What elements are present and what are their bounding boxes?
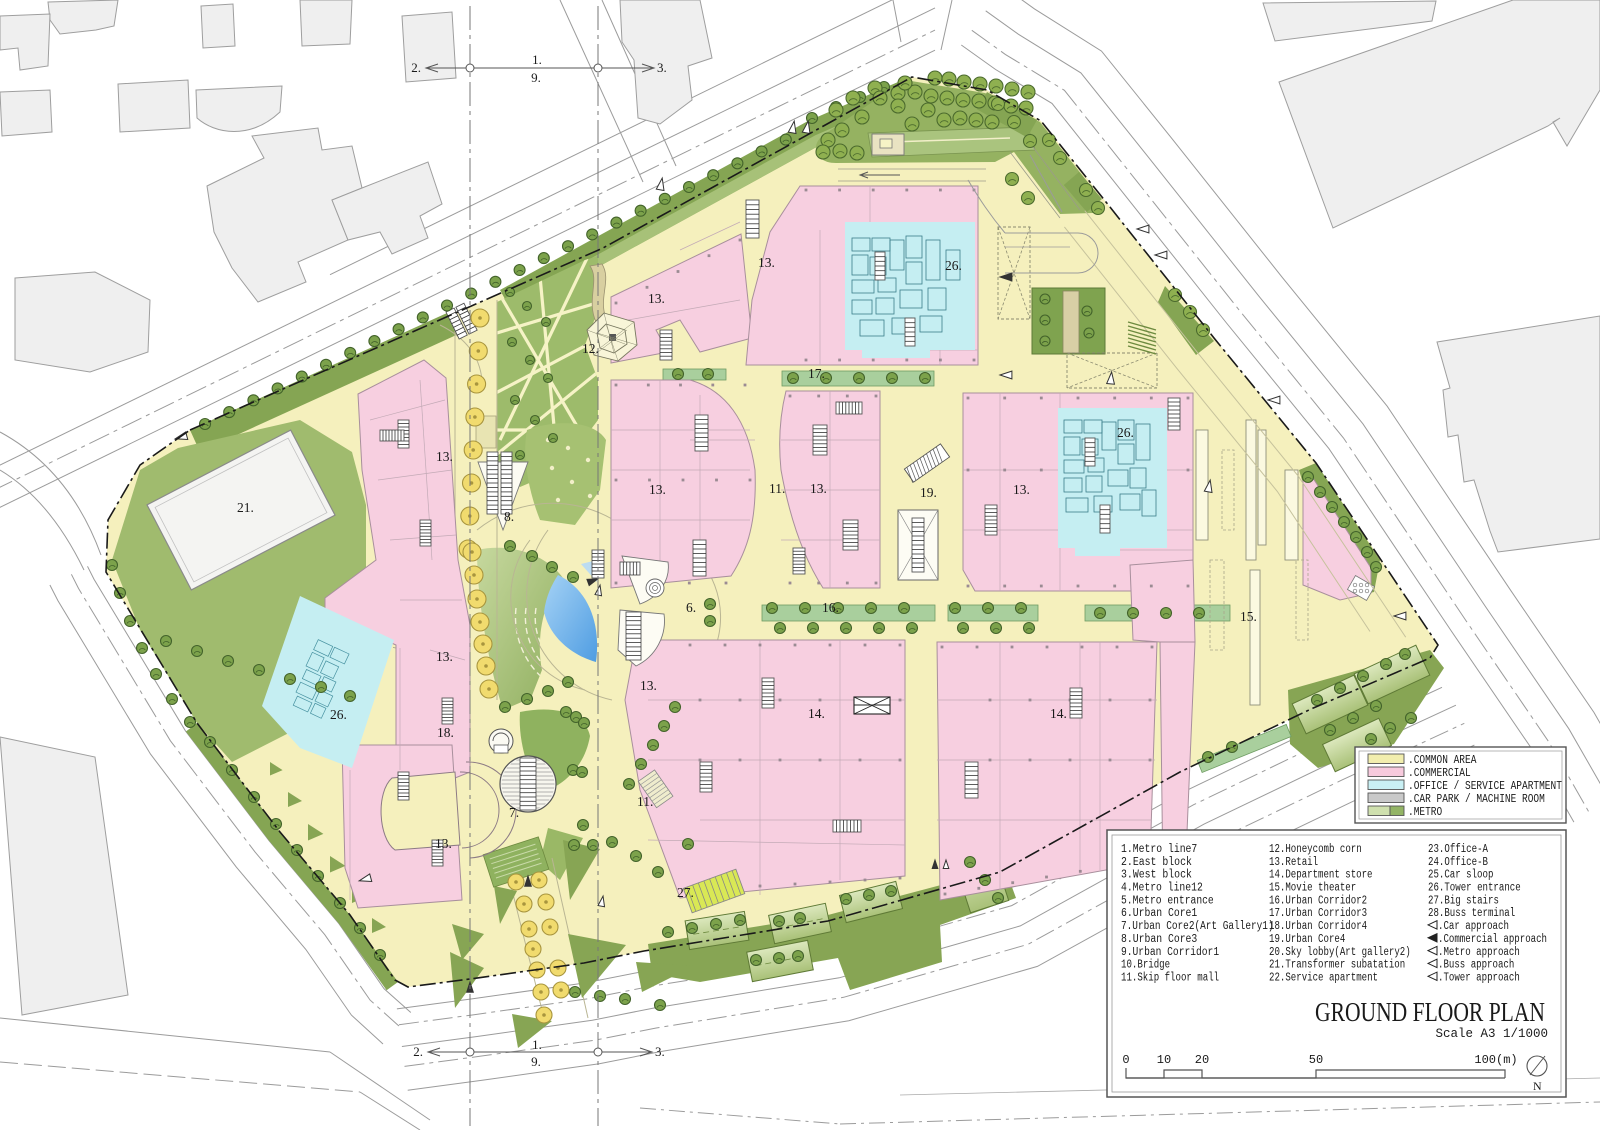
- svg-text:22.Service apartment: 22.Service apartment: [1269, 972, 1378, 985]
- svg-text:17.Urban Corridor3: 17.Urban Corridor3: [1269, 907, 1367, 920]
- svg-text:26.Tower entrance: 26.Tower entrance: [1428, 882, 1521, 895]
- svg-text:.COMMERCIAL: .COMMERCIAL: [1408, 767, 1471, 780]
- svg-text:10.Bridge: 10.Bridge: [1121, 959, 1170, 972]
- svg-text:20.Sky lobby(Art gallery2): 20.Sky lobby(Art gallery2): [1269, 946, 1411, 959]
- svg-text:12.Honeycomb corn: 12.Honeycomb corn: [1269, 843, 1362, 856]
- svg-text:5.Metro entrance: 5.Metro entrance: [1121, 894, 1214, 907]
- svg-text:6.Urban Core1: 6.Urban Core1: [1121, 907, 1197, 920]
- svg-text:100(m): 100(m): [1474, 1053, 1517, 1067]
- svg-text:1.Metro line7: 1.Metro line7: [1121, 843, 1197, 856]
- svg-text:13.: 13.: [436, 649, 453, 664]
- svg-text:.Tower approach: .Tower approach: [1438, 972, 1520, 985]
- svg-text:13.: 13.: [758, 255, 775, 270]
- svg-text:21.: 21.: [237, 500, 254, 515]
- svg-text:Scale A3 1/1000: Scale A3 1/1000: [1435, 1027, 1548, 1041]
- svg-text:26.: 26.: [1117, 425, 1134, 440]
- svg-text:14.: 14.: [808, 706, 825, 721]
- svg-text:26.: 26.: [330, 707, 347, 722]
- svg-text:.Buss approach: .Buss approach: [1438, 959, 1514, 972]
- svg-text:19.: 19.: [920, 485, 937, 500]
- svg-text:13.: 13.: [435, 836, 452, 851]
- svg-text:13.: 13.: [649, 482, 666, 497]
- svg-text:3.: 3.: [657, 60, 667, 75]
- svg-text:.COMMON AREA: .COMMON AREA: [1408, 754, 1476, 767]
- svg-text:7.Urban Core2(Art Gallery1): 7.Urban Core2(Art Gallery1): [1121, 920, 1274, 933]
- svg-text:21.Transformer subatation: 21.Transformer subatation: [1269, 959, 1405, 972]
- svg-text:16.: 16.: [822, 600, 839, 615]
- svg-text:.METRO: .METRO: [1408, 806, 1442, 819]
- svg-text:9.: 9.: [531, 70, 541, 85]
- svg-text:11.: 11.: [637, 794, 653, 809]
- svg-text:26.: 26.: [945, 258, 962, 273]
- svg-text:50: 50: [1309, 1053, 1323, 1067]
- svg-text:1.: 1.: [532, 1037, 542, 1052]
- svg-text:10: 10: [1157, 1053, 1171, 1067]
- svg-text:4.Metro line12: 4.Metro line12: [1121, 882, 1203, 895]
- svg-text:13.: 13.: [1013, 482, 1030, 497]
- svg-text:0: 0: [1122, 1053, 1129, 1067]
- svg-text:23.Office-A: 23.Office-A: [1428, 843, 1488, 856]
- svg-text:9.: 9.: [531, 1054, 541, 1069]
- svg-text:19.Urban Core4: 19.Urban Core4: [1269, 933, 1345, 946]
- svg-text:15.Movie theater: 15.Movie theater: [1269, 882, 1356, 895]
- svg-text:15.: 15.: [1240, 609, 1257, 624]
- svg-text:28.Buss terminal: 28.Buss terminal: [1428, 907, 1515, 920]
- svg-text:3.West block: 3.West block: [1121, 869, 1192, 882]
- svg-text:N: N: [1533, 1079, 1542, 1093]
- svg-text:24.Office-B: 24.Office-B: [1428, 856, 1488, 869]
- svg-text:27.: 27.: [677, 885, 694, 900]
- svg-text:27.Big stairs: 27.Big stairs: [1428, 894, 1499, 907]
- svg-text:2.: 2.: [411, 60, 421, 75]
- svg-text:14.: 14.: [1050, 706, 1067, 721]
- svg-text:16.Urban Corridor2: 16.Urban Corridor2: [1269, 894, 1367, 907]
- svg-text:13.: 13.: [436, 449, 453, 464]
- svg-text:.CAR PARK / MACHINE ROOM: .CAR PARK / MACHINE ROOM: [1408, 793, 1545, 806]
- svg-text:18.: 18.: [437, 725, 454, 740]
- svg-text:17.: 17.: [808, 366, 825, 381]
- svg-text:2.East block: 2.East block: [1121, 856, 1192, 869]
- svg-text:13.: 13.: [810, 481, 827, 496]
- svg-text:14.Department store: 14.Department store: [1269, 869, 1373, 882]
- svg-text:3.: 3.: [655, 1044, 665, 1059]
- svg-text:7.: 7.: [509, 805, 519, 820]
- svg-text:.Metro approach: .Metro approach: [1438, 946, 1520, 959]
- svg-text:13.Retail: 13.Retail: [1269, 856, 1318, 869]
- svg-text:8.Urban Core3: 8.Urban Core3: [1121, 933, 1197, 946]
- svg-text:18.Urban Corridor4: 18.Urban Corridor4: [1269, 920, 1367, 933]
- svg-text:11.: 11.: [769, 481, 785, 496]
- svg-text:6.: 6.: [686, 600, 696, 615]
- svg-text:25.Car sloop: 25.Car sloop: [1428, 869, 1493, 882]
- svg-text:.Commercial approach: .Commercial approach: [1438, 933, 1547, 946]
- svg-text:.Car approach: .Car approach: [1438, 920, 1509, 933]
- svg-text:1.: 1.: [532, 52, 542, 67]
- svg-text:2.: 2.: [413, 1044, 423, 1059]
- svg-text:.OFFICE / SERVICE APARTMENT: .OFFICE / SERVICE APARTMENT: [1408, 780, 1562, 793]
- svg-text:12.: 12.: [582, 341, 599, 356]
- svg-text:13.: 13.: [648, 291, 665, 306]
- svg-text:9.Urban Corridor1: 9.Urban Corridor1: [1121, 946, 1219, 959]
- svg-text:20: 20: [1195, 1053, 1209, 1067]
- svg-text:13.: 13.: [640, 678, 657, 693]
- svg-text:GROUND FLOOR PLAN: GROUND FLOOR PLAN: [1315, 996, 1545, 1027]
- svg-text:11.Skip floor mall: 11.Skip floor mall: [1121, 972, 1219, 985]
- svg-text:8.: 8.: [504, 509, 514, 524]
